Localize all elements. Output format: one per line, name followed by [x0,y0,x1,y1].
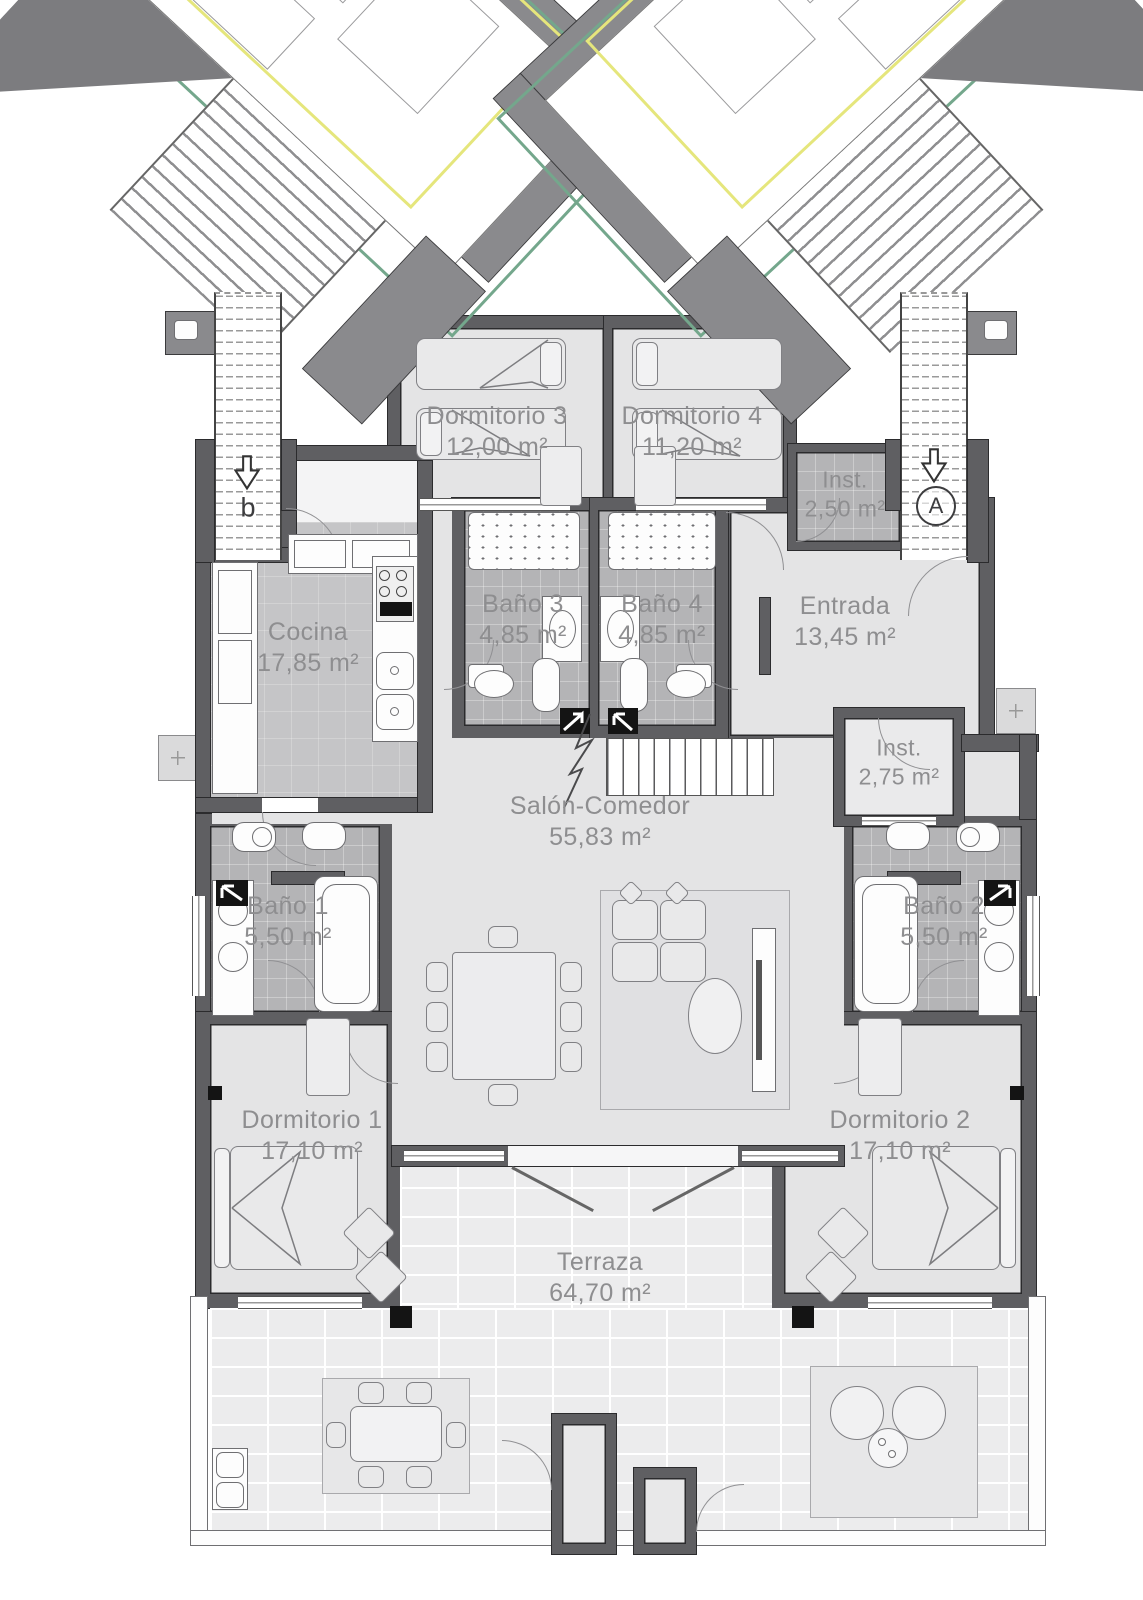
burner-icon [396,586,407,597]
sofa-cushion [612,942,658,982]
chair [560,1042,582,1072]
room-area: 64,70 m² [549,1278,651,1309]
room-name: Salón-Comedor [510,791,690,822]
tv [756,960,762,1060]
terrace-parapet [1028,1296,1046,1546]
room-name: Entrada [794,591,896,622]
column [1010,1086,1024,1100]
room-label-inst-right: Inst. 2,75 m² [859,733,940,791]
room-name: Inst. [805,465,886,494]
stair-level-label-b: b [240,493,255,524]
room-area: 17,85 m² [257,648,359,679]
room-area: 55,83 m² [510,822,690,853]
bidet [620,658,648,712]
room-name: Inst. [859,733,940,762]
duct-hatch [216,880,248,906]
survey-cross-pier [996,688,1036,734]
duct-hatch [984,880,1016,906]
shower-tray [608,512,716,570]
landing-box [174,320,198,340]
chair [326,1422,346,1448]
room-name: Dormitorio 1 [242,1105,383,1136]
mirror-bar [760,598,770,674]
wall [968,440,988,562]
room-name: Baño 2 [900,891,988,922]
room-area: 13,45 m² [794,622,896,653]
chair [358,1382,384,1404]
outdoor-sink [216,1482,244,1508]
room-name: Baño 3 [479,589,567,620]
interior-stairs [606,738,774,796]
chair [488,926,518,948]
room-area: 17,10 m² [242,1136,383,1167]
arrow-down-icon [918,448,950,484]
chair [560,962,582,992]
room-label-salon: Salón-Comedor 55,83 m² [510,791,690,854]
column [390,1306,412,1328]
toilet-bowl [666,670,706,698]
drain-icon [390,666,399,675]
floor-plan: b A Dormitorio 3 12,00 m² Dormitorio 4 1… [0,0,1143,1600]
window [742,1150,838,1162]
arrow-glyph [216,880,248,906]
room-name: Baño 1 [244,891,332,922]
room-area: 4,85 m² [479,620,567,651]
wall [196,440,214,562]
terrace-parapet [190,1530,1046,1546]
room-label-dormitorio1: Dormitorio 1 17,10 m² [242,1105,383,1168]
bed-headboard [214,1148,230,1268]
room-name: Cocina [257,617,359,648]
sofa-cushion [612,900,658,940]
room-label-bano4: Baño 4 4,85 m² [618,589,706,652]
room-label-bano1: Baño 1 5,50 m² [244,891,332,954]
window [192,896,206,996]
door-gap [262,798,318,812]
room-name: Baño 4 [618,589,706,620]
cup-icon [878,1438,886,1446]
room-name: Dormitorio 2 [830,1105,971,1136]
stair-level-badge-a: A [916,486,956,526]
chair [426,962,448,992]
column [208,1086,222,1100]
hall-floor [432,510,452,740]
toilet-bowl [474,670,514,698]
room-area: 2,75 m² [859,762,940,791]
side-table [868,1428,908,1468]
chair [446,1422,466,1448]
bidet [532,658,560,712]
window [404,1150,504,1162]
chair [358,1466,384,1488]
room-label-inst-top: Inst. 2,50 m² [805,465,886,523]
wall [196,548,210,812]
column [792,1306,814,1328]
survey-cross-pier [158,735,198,781]
arrow-glyph [984,880,1016,906]
room-name: Terraza [549,1247,651,1278]
wall [282,440,296,510]
drain-icon [390,707,399,716]
room-area: 5,50 m² [244,922,332,953]
kitchen-appliance [218,640,252,704]
chair [560,1002,582,1032]
shower-tray [468,512,580,570]
room-area: 2,50 m² [805,494,886,523]
closet [306,1018,350,1096]
room-area: 4,85 m² [618,620,706,651]
wall [886,440,900,510]
burner-icon [379,570,390,581]
toilet-bowl [252,827,272,847]
room-area: 12,00 m² [427,432,568,463]
chair [406,1382,432,1404]
oven [380,602,412,616]
bed-headboard [1000,1148,1016,1268]
window [1026,896,1040,996]
cup-icon [888,1450,896,1458]
wall [1020,735,1036,819]
terrace-storage-room [552,1414,616,1554]
burner-icon [379,586,390,597]
room-label-dormitorio4: Dormitorio 4 11,20 m² [622,401,763,464]
terrace-storage-room [634,1468,696,1554]
kitchen-appliance [294,540,346,568]
pillow [636,342,658,386]
burner-icon [396,570,407,581]
fridge [218,570,252,634]
landing-box [984,320,1008,340]
room-label-bano3: Baño 3 4,85 m² [479,589,567,652]
outdoor-sink [216,1452,244,1478]
bed-fold-lines [470,338,550,392]
room-name: Dormitorio 4 [622,401,763,432]
bidet [302,822,346,850]
window [868,1296,992,1309]
washbasin [984,942,1014,972]
room-label-bano2: Baño 2 5,50 m² [900,891,988,954]
bidet [886,822,930,850]
room-label-entrada: Entrada 13,45 m² [794,591,896,654]
window [238,1296,362,1309]
chair [406,1466,432,1488]
room-label-cocina: Cocina 17,85 m² [257,617,359,680]
stair-level-label-a: A [929,493,944,519]
room-area: 17,10 m² [830,1136,971,1167]
coffee-table [688,978,742,1054]
chair [426,1002,448,1032]
closet [858,1018,902,1096]
room-area: 5,50 m² [900,922,988,953]
outdoor-table [350,1406,442,1462]
wall [296,446,432,460]
chair [426,1042,448,1072]
room-name: Dormitorio 3 [427,401,568,432]
chair [488,1084,518,1106]
room-area: 11,20 m² [622,432,763,463]
dining-table [452,952,556,1080]
toilet-bowl [960,827,980,847]
door-gap [508,1146,738,1166]
vestibule-floor [296,460,420,522]
sofa-cushion [660,942,706,982]
arrow-down-icon [231,455,263,491]
room-label-dormitorio3: Dormitorio 3 12,00 m² [427,401,568,464]
terrace-parapet [190,1296,208,1546]
room-label-terraza: Terraza 64,70 m² [549,1247,651,1310]
room-label-dormitorio2: Dormitorio 2 17,10 m² [830,1105,971,1168]
sofa-cushion [660,900,706,940]
